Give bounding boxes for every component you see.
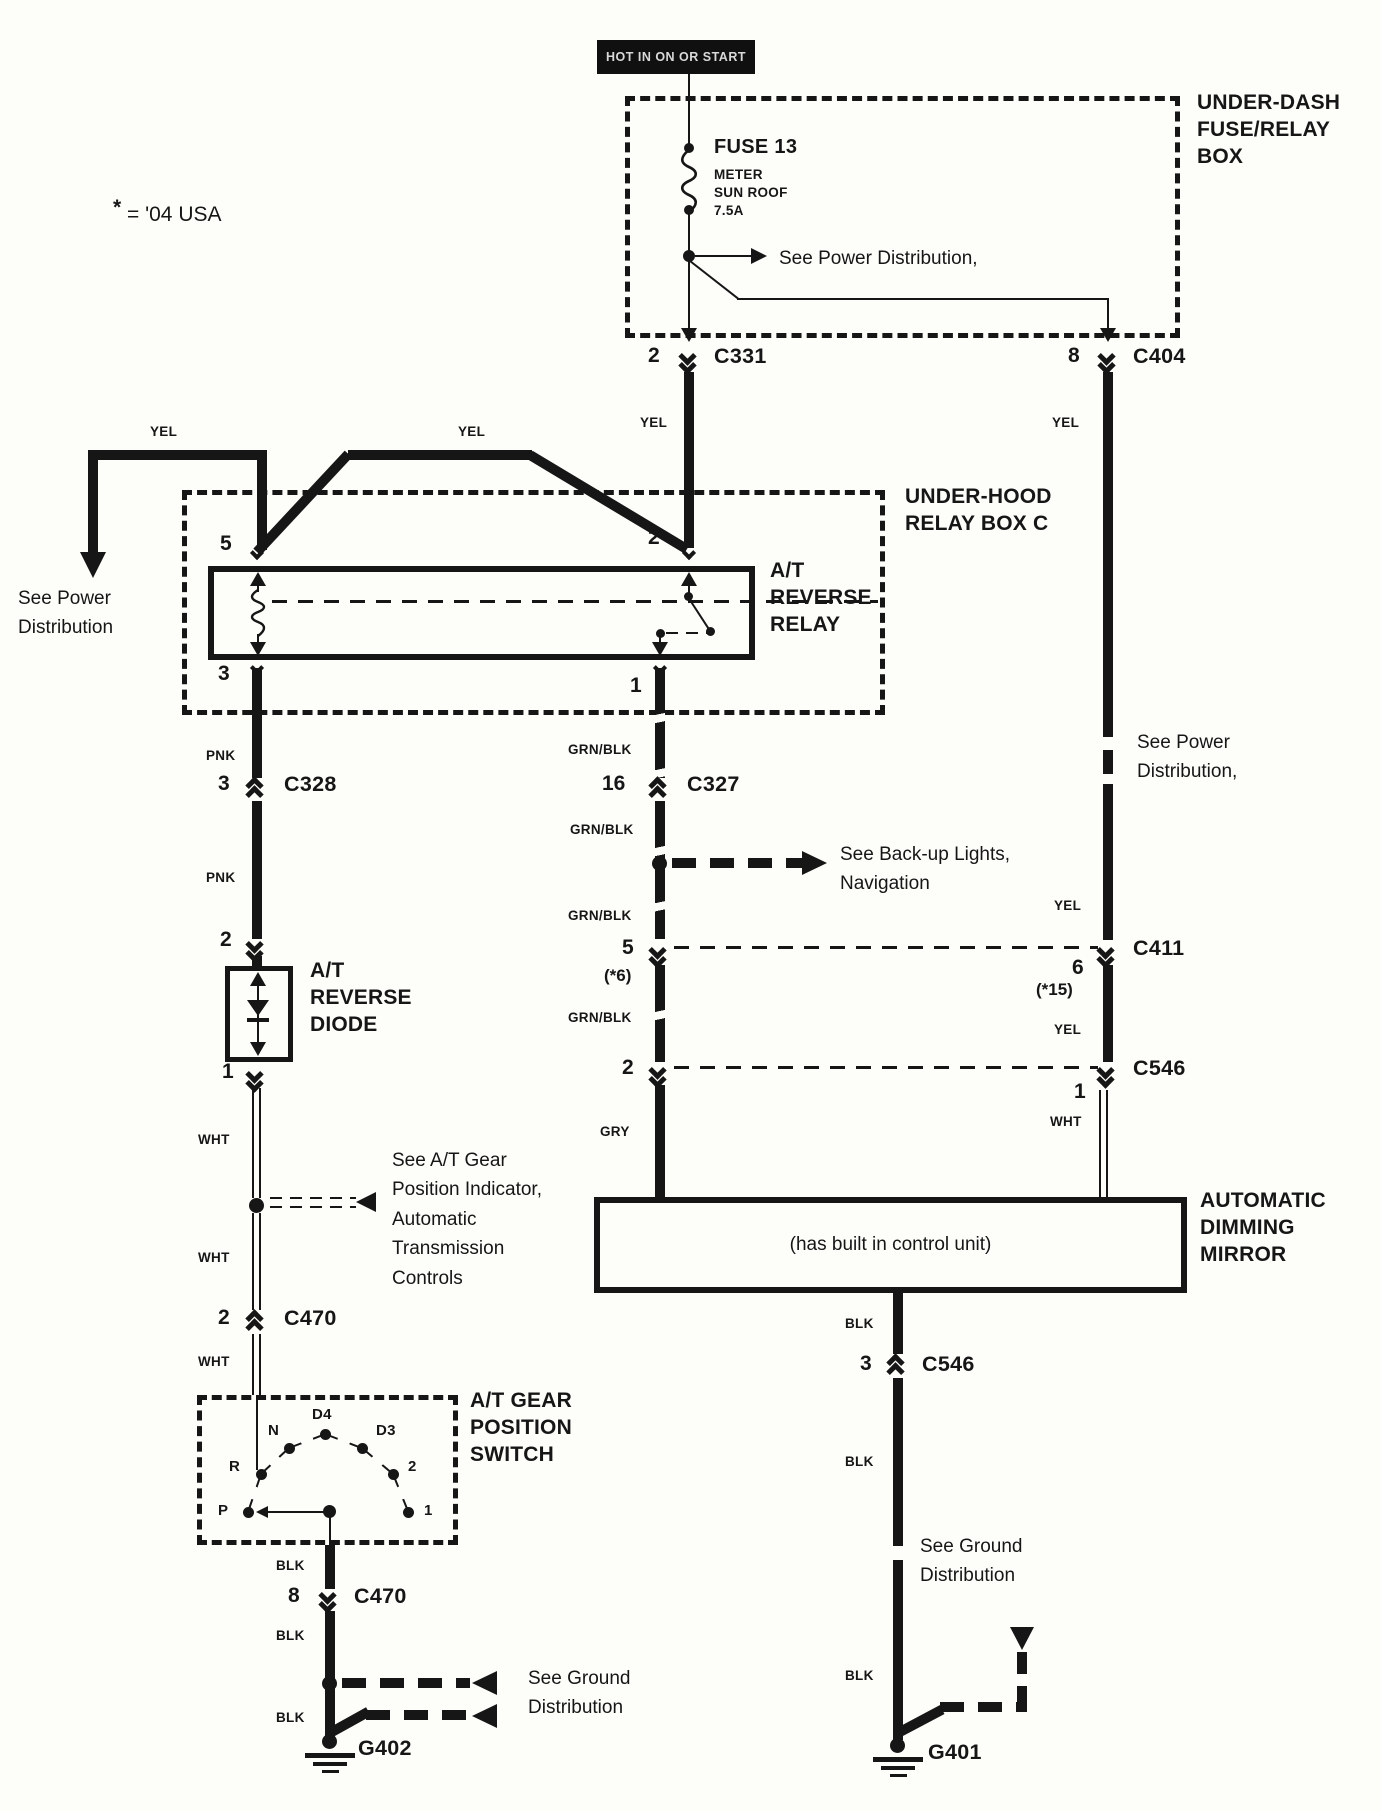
switch-position-label: P: [218, 1502, 228, 1519]
wire: [688, 213, 690, 255]
connector-note: (*15): [1036, 980, 1073, 1000]
branch-wire: [695, 255, 751, 257]
switch-position-label: R: [229, 1458, 240, 1475]
wire-color-label: BLK: [276, 1710, 305, 1725]
wire-color-label: GRN/BLK: [568, 908, 632, 923]
switch-position-dot: [243, 1507, 254, 1518]
relay-label: A/T REVERSE RELAY: [770, 558, 872, 639]
wire-color-label: BLK: [276, 1558, 305, 1573]
wire-blk: [893, 1378, 903, 1546]
wire-grn-blk: [655, 668, 665, 778]
wire-wht: [252, 1088, 261, 1198]
relay-contact-dashed: [666, 632, 708, 634]
fuse-symbol: [678, 150, 700, 212]
mirror-inner-note: (has built in control unit): [790, 1234, 992, 1256]
ground-dot: [322, 1734, 337, 1749]
ground-branch-dashed: [366, 1710, 470, 1720]
wire-color-label: PNK: [206, 870, 235, 885]
see-ground-left: See Ground Distribution: [528, 1664, 630, 1723]
arrow-right-icon: [802, 851, 827, 875]
branch-dashed: [270, 1197, 356, 1199]
wire-color-label: GRN/BLK: [568, 1010, 632, 1025]
see-power-left: See Power Distribution: [18, 584, 113, 643]
fuse-name: FUSE 13: [714, 136, 797, 159]
see-power-top: See Power Distribution,: [779, 244, 978, 273]
arrow-up-icon: [250, 972, 266, 986]
connector-pin: 6: [1072, 956, 1084, 980]
switch-position-dot: [357, 1443, 368, 1454]
switch-wire: [256, 1395, 258, 1470]
ground-symbol: [881, 1766, 915, 1770]
connector-pin: 8: [1068, 344, 1080, 368]
ground-symbol: [313, 1762, 347, 1766]
connector-name: C327: [687, 772, 740, 797]
switch-position-label: 1: [424, 1502, 433, 1519]
wire-wht: [252, 1213, 261, 1310]
inline-connector-link: [674, 946, 1098, 949]
junction-dot: [322, 1676, 337, 1691]
wire-color-label: PNK: [206, 748, 235, 763]
wire-color-label: YEL: [1054, 898, 1081, 913]
connector-name: C331: [714, 344, 767, 369]
wire-color-label: WHT: [198, 1250, 230, 1265]
under-dash-fuse-relay-box: [625, 96, 1180, 338]
ground-symbol: [890, 1774, 907, 1777]
wire-blk: [325, 1545, 335, 1589]
wire-grn-blk: [655, 965, 665, 1062]
switch-position-dot: [256, 1469, 267, 1480]
ground-symbol: [322, 1770, 339, 1773]
relay-pin-5: 5: [220, 532, 232, 556]
connector-pin: 2: [220, 928, 232, 952]
power-source-label: HOT IN ON OR START: [606, 50, 746, 64]
connector-name: C328: [284, 772, 337, 797]
see-ground-right: See Ground Distribution: [920, 1532, 1022, 1591]
wire-color-label: BLK: [845, 1454, 874, 1469]
wire-pnk: [252, 801, 262, 939]
connector-pin: 1: [222, 1060, 234, 1084]
under-hood-box-label: UNDER-HOOD RELAY BOX C: [905, 484, 1052, 538]
wire-color-label: YEL: [1054, 1022, 1081, 1037]
ground-branch-dashed: [342, 1678, 470, 1688]
wire-wht: [1099, 1090, 1108, 1197]
wire-yel: [88, 455, 98, 553]
wire-yel: [348, 450, 532, 460]
wire-yel: [1103, 372, 1113, 737]
usa-note: * = '04 USA: [113, 203, 222, 227]
switch-wire: [329, 1512, 331, 1545]
wire-color-label: BLK: [276, 1628, 305, 1643]
relay-linkage-dashed-line: [272, 600, 878, 603]
automatic-dimming-mirror: (has built in control unit): [594, 1197, 1187, 1293]
see-gear-indicator: See A/T Gear Position Indicator, Automat…: [392, 1146, 542, 1293]
junction-dot: [249, 1198, 264, 1213]
branch-dashed: [270, 1206, 356, 1208]
switch-wiper: [264, 1511, 330, 1513]
relay-pin-2: 2: [648, 526, 660, 550]
switch-position-label: D4: [312, 1406, 332, 1423]
wire-yel: [1103, 784, 1113, 940]
power-source-banner: HOT IN ON OR START: [597, 40, 755, 74]
wire-color-label: YEL: [640, 415, 667, 430]
ground-symbol: [305, 1753, 355, 1758]
wire-yel: [1103, 965, 1113, 1062]
wire-color-label: WHT: [198, 1132, 230, 1147]
wire-color-label: GRY: [600, 1124, 630, 1139]
arrow-down-icon: [1100, 328, 1116, 342]
relay-pin-3: 3: [218, 662, 230, 686]
connector-pin: 3: [218, 772, 230, 796]
wire-color-label: BLK: [845, 1316, 874, 1331]
arrow-down-icon: [652, 642, 668, 656]
wire: [688, 260, 690, 328]
wire-color-label: BLK: [845, 1668, 874, 1683]
ground-name: G402: [358, 1736, 412, 1761]
connector-name: C411: [1133, 936, 1184, 961]
usa-note-star: *: [113, 196, 121, 219]
ground-dot: [890, 1738, 905, 1753]
arrow-down-icon: [250, 1042, 266, 1056]
wire-pnk: [252, 956, 262, 966]
inline-connector-link: [674, 1066, 1098, 1069]
switch-position-dot: [284, 1443, 295, 1454]
diode-label: A/T REVERSE DIODE: [310, 958, 412, 1039]
connector-name: C546: [1133, 1056, 1186, 1081]
branch-wire: [737, 298, 1109, 300]
wire-blk: [893, 1560, 903, 1740]
connector-pin: 2: [622, 1056, 634, 1080]
switch-position-dot: [403, 1507, 414, 1518]
ground-branch-dashed: [940, 1702, 1020, 1712]
wire-color-label: GRN/BLK: [568, 742, 632, 757]
branch-wire: [1107, 300, 1109, 330]
fuse-detail: METER SUN ROOF 7.5A: [714, 166, 788, 221]
wire-blk: [893, 1293, 903, 1354]
connector-name: C470: [284, 1306, 337, 1331]
arrow-left-icon: [472, 1671, 497, 1695]
wire-color-label: YEL: [150, 424, 177, 439]
diode-symbol-bar: [247, 1018, 269, 1022]
wire-color-label: GRN/BLK: [570, 822, 634, 837]
arrow-down-icon: [1010, 1627, 1034, 1650]
relay-pin-1: 1: [630, 674, 642, 698]
junction-dot: [652, 856, 667, 871]
arrow-down-icon: [681, 328, 697, 342]
connector-pin: 16: [602, 772, 625, 796]
relay-coil-symbol: [248, 590, 268, 636]
connector-pin: 3: [860, 1352, 872, 1376]
wire-color-label: WHT: [198, 1354, 230, 1369]
wire-blk: [325, 1611, 335, 1737]
wire-yel: [1103, 750, 1113, 774]
under-dash-box-label: UNDER-DASH FUSE/RELAY BOX: [1197, 90, 1340, 171]
wire-color-label: WHT: [1050, 1114, 1082, 1129]
connector-pin: 1: [1074, 1080, 1086, 1104]
wire-gry: [655, 1085, 665, 1197]
backup-branch-dashed: [672, 858, 802, 868]
wire-yel: [88, 450, 267, 460]
arrow-left-icon: [472, 1704, 497, 1728]
connector-pin: 2: [648, 344, 660, 368]
arrow-left-icon: [256, 1506, 268, 1518]
wire: [688, 74, 690, 150]
wire-wht: [252, 1334, 261, 1395]
connector-name: C470: [354, 1584, 407, 1609]
wire-pnk: [252, 668, 262, 778]
usa-note-text: = '04 USA: [121, 203, 221, 226]
ground-symbol: [873, 1757, 923, 1762]
arrow-down-icon: [250, 642, 266, 656]
switch-position-label: 2: [408, 1458, 417, 1475]
wire-color-label: YEL: [1052, 415, 1079, 430]
switch-position-label: N: [268, 1422, 279, 1439]
connector-name: C546: [922, 1352, 975, 1377]
connector-pin: 5: [622, 936, 634, 960]
arrow-right-icon: [751, 248, 767, 264]
arrow-left-icon: [356, 1192, 376, 1212]
connector-note: (*6): [604, 966, 631, 986]
ground-name: G401: [928, 1740, 982, 1765]
wiring-diagram: * = '04 USA HOT IN ON OR START UNDER-DAS…: [0, 0, 1381, 1811]
diode-symbol: [247, 1000, 269, 1016]
arrow-down-icon: [80, 552, 106, 578]
at-reverse-relay: [208, 566, 755, 660]
ground-branch-dashed: [1017, 1652, 1027, 1704]
wire-color-label: YEL: [458, 424, 485, 439]
gear-switch-label: A/T GEAR POSITION SWITCH: [470, 1388, 572, 1469]
see-power-right: See Power Distribution,: [1137, 728, 1237, 787]
connector-pin: 2: [218, 1306, 230, 1330]
connector-pin: 8: [288, 1584, 300, 1608]
mirror-label: AUTOMATIC DIMMING MIRROR: [1200, 1188, 1326, 1269]
see-backup-lights: See Back-up Lights, Navigation: [840, 840, 1010, 899]
switch-position-dot: [320, 1429, 331, 1440]
switch-position-label: D3: [376, 1422, 396, 1439]
switch-position-dot: [388, 1469, 399, 1480]
connector-name: C404: [1133, 344, 1186, 369]
